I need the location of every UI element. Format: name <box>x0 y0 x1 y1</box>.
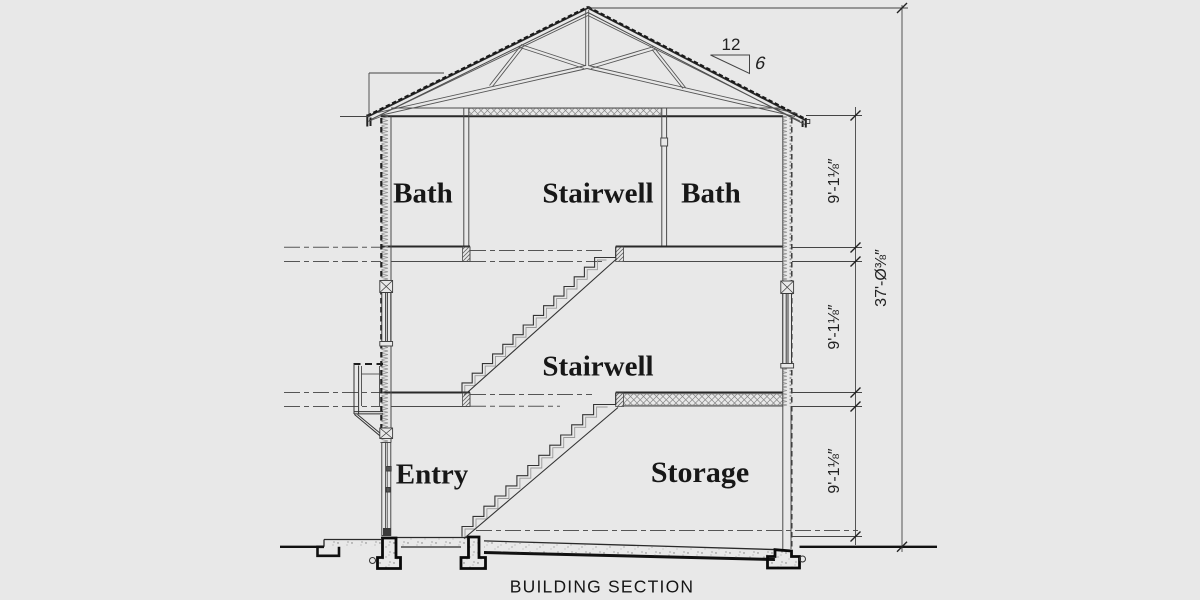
svg-text:Bath: Bath <box>393 178 453 210</box>
svg-text:Storage: Storage <box>651 456 749 489</box>
svg-text:6: 6 <box>753 52 768 73</box>
svg-text:BUILDING SECTION: BUILDING SECTION <box>510 577 695 597</box>
svg-text:Stairwell: Stairwell <box>542 351 653 383</box>
svg-text:37'-Ø⅜″: 37'-Ø⅜″ <box>873 249 890 307</box>
svg-text:Bath: Bath <box>681 178 741 210</box>
svg-text:Stairwell: Stairwell <box>542 178 653 210</box>
svg-text:9'-1⅛″: 9'-1⅛″ <box>826 448 843 494</box>
svg-text:9'-1⅛″: 9'-1⅛″ <box>826 158 843 204</box>
svg-text:Entry: Entry <box>396 459 469 491</box>
svg-text:12: 12 <box>722 35 741 54</box>
svg-text:9'-1⅛″: 9'-1⅛″ <box>826 304 843 350</box>
